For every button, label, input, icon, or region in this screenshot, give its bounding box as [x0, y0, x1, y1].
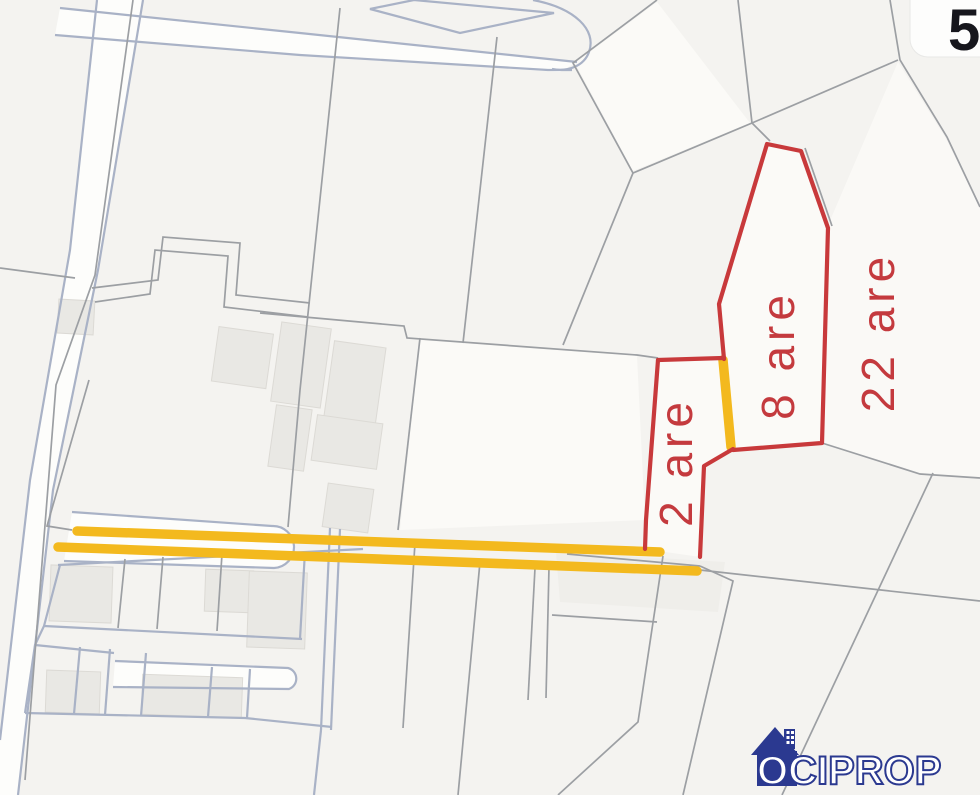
top-diamond-parcel-fill [575, 2, 750, 171]
parcel-label-2-are: 2 are [650, 397, 702, 527]
logo: OCIPROP [751, 727, 941, 793]
cadastral-map: 2 are 8 are 22 are 5 OCIPROP [0, 0, 980, 795]
corner-marker: 5 [910, 0, 980, 63]
marker-number: 5 [948, 0, 980, 63]
parcel-label-8-are: 8 are [752, 290, 804, 420]
logo-text: OCIPROP [757, 749, 941, 793]
parcel-2-are-right-edge [700, 449, 733, 557]
parcel-label-22-are: 22 are [852, 252, 904, 412]
middle-parcel-fill [400, 340, 645, 530]
cadastral-map-screenshot: 2 are 8 are 22 are 5 OCIPROP [0, 0, 980, 795]
parcel-2-are-top-edge [658, 358, 723, 360]
